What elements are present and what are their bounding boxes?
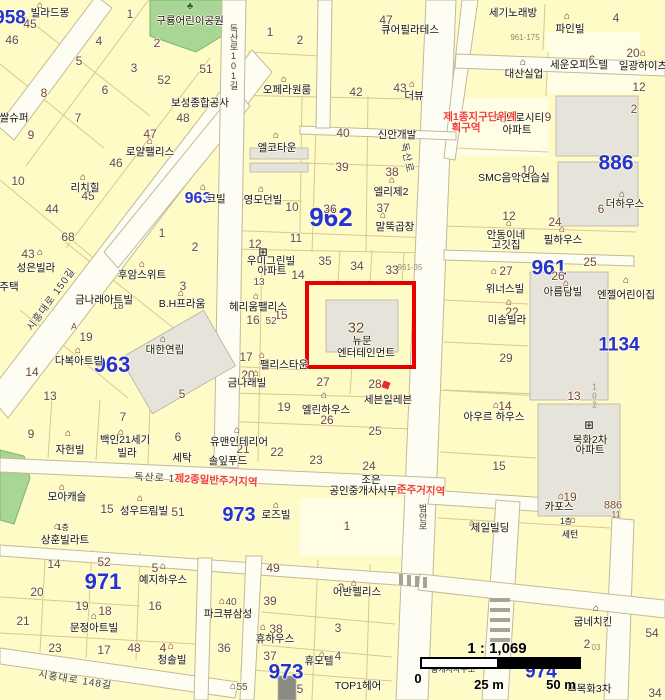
scale-tick-mid: 25 m [474, 677, 504, 692]
highlighted-parcel[interactable] [305, 281, 416, 369]
map-canvas[interactable]: 9589629639639618861134971973973974454614… [0, 0, 665, 700]
scale-ratio: 1 : 1,069 [467, 640, 526, 657]
scale-bar: 1 : 1,069 0 25 m 50 m [410, 640, 610, 695]
scale-segment-black [497, 657, 581, 669]
scale-segment-white [420, 657, 501, 669]
scale-tick-zero: 0 [414, 671, 421, 686]
scale-tick-end: 50 m [546, 677, 576, 692]
